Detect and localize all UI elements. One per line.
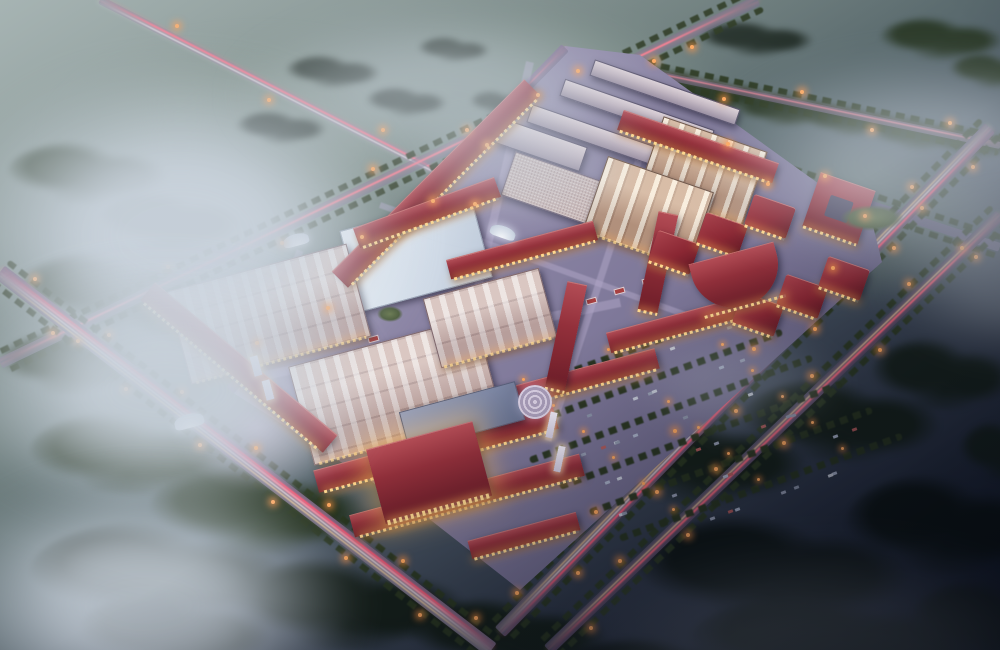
street-light bbox=[686, 533, 690, 537]
circular-plaza bbox=[518, 385, 552, 419]
street-light bbox=[655, 490, 659, 494]
street-light bbox=[714, 467, 718, 471]
street-light bbox=[401, 559, 405, 563]
parking-light bbox=[727, 452, 730, 455]
street-light bbox=[474, 616, 478, 620]
fog-patch bbox=[380, 110, 650, 230]
street-light bbox=[515, 591, 519, 595]
street-light bbox=[327, 503, 331, 507]
street-light bbox=[782, 441, 786, 445]
fog-patch bbox=[630, 330, 850, 440]
street-light bbox=[878, 348, 882, 352]
street-light bbox=[594, 510, 598, 514]
parking-light bbox=[757, 478, 760, 481]
street-light bbox=[690, 45, 694, 49]
aerial-industrial-park-rendering bbox=[0, 0, 1000, 650]
street-light bbox=[418, 613, 422, 617]
